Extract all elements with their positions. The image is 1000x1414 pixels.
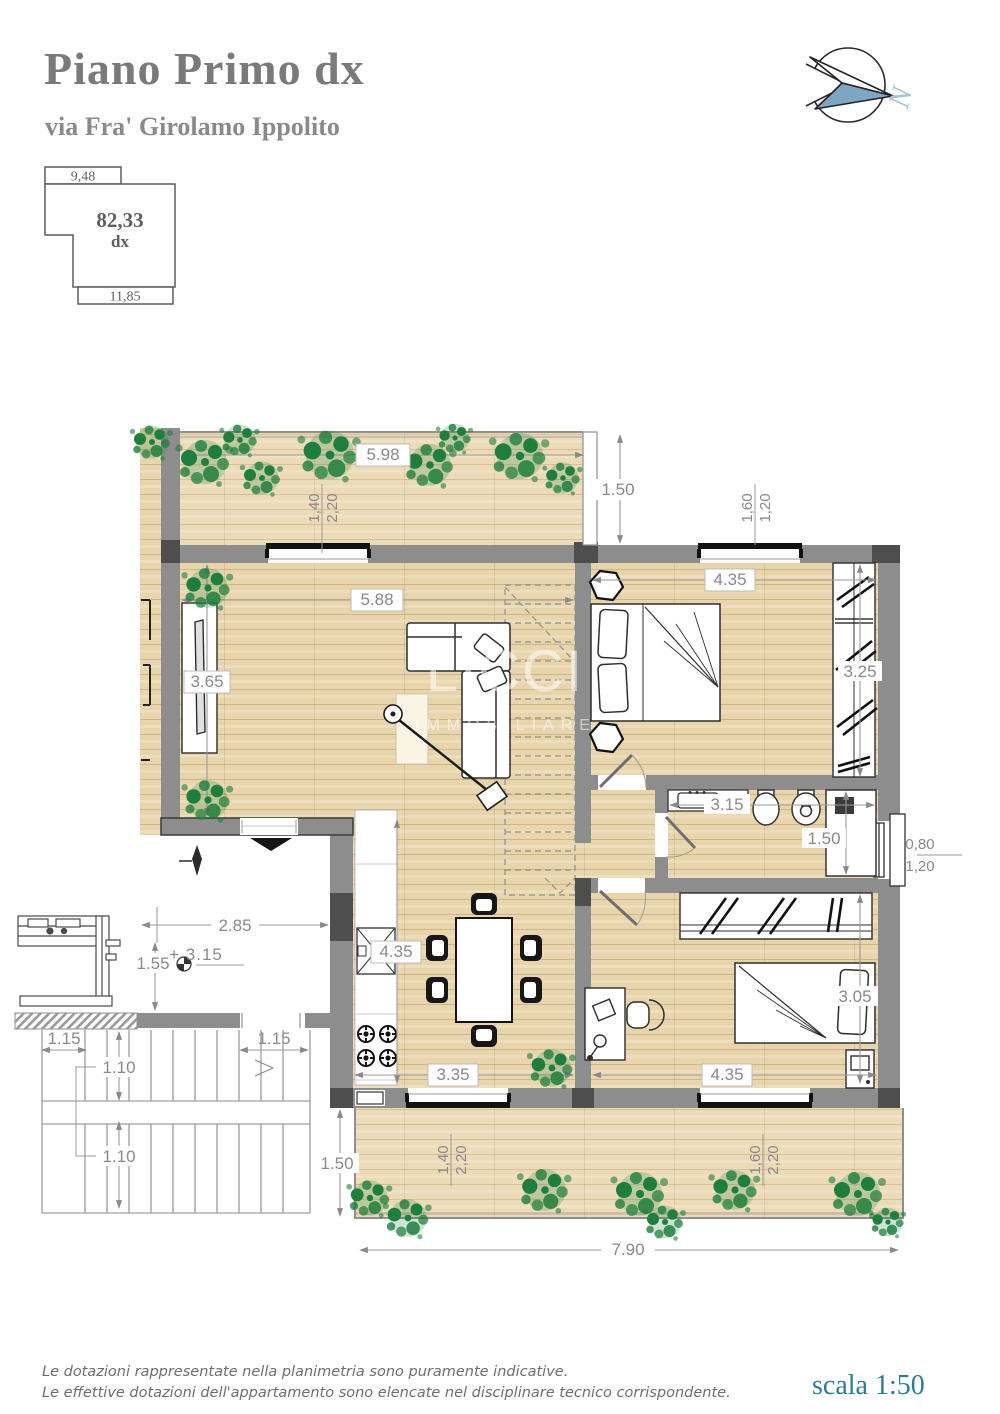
level-value: + 3.15 [169, 945, 223, 964]
keyplan-area: 82,33 [96, 208, 143, 232]
disclaimer-line2: Le effettive dotazioni dell'appartamento… [42, 1383, 731, 1404]
dim-stair-flight-lower: 1.10 [102, 1147, 135, 1166]
north-label: N [882, 82, 920, 113]
dim-stair-left: 1.15 [47, 1029, 80, 1048]
floorplan-page: Piano Primo dx via Fra' Girolamo Ippolit… [0, 0, 1000, 1414]
dim-landing-width: 2.85 [218, 916, 251, 935]
win-living-w: 1,40 [306, 493, 323, 522]
win-bedroom2-h: 2,20 [765, 1145, 782, 1174]
wardrobe-bedroom2 [680, 893, 872, 939]
dim-kitchen-depth: 4.35 [379, 942, 412, 961]
win-living-h: 2,20 [324, 493, 341, 522]
entry-door-detail [18, 916, 120, 1006]
dim-stair-flight-upper: 1.10 [102, 1058, 135, 1077]
dim-terrace-top-width: 5.98 [366, 445, 399, 464]
win-bath-w: 0,80 [905, 836, 934, 853]
win-kitchen-w: 1,40 [435, 1145, 452, 1174]
win-bedroom2-w: 1,60 [747, 1145, 764, 1174]
window-bath [874, 814, 905, 886]
floorplan-drawing: 9,48 82,33 dx 11,85 N [0, 0, 1000, 1414]
keyplan-unit: dx [111, 232, 129, 251]
dim-stair-right: 1.15 [257, 1029, 290, 1048]
desk [585, 988, 625, 1061]
north-compass-icon: N [804, 48, 920, 122]
small-window-kitchen [357, 1092, 383, 1104]
dim-bath-width: 3.15 [710, 795, 743, 814]
dim-shower-depth: 1.50 [807, 829, 840, 848]
dim-kitchen-width: 3.35 [436, 1065, 469, 1084]
keyplan-diagram: 9,48 82,33 dx 11,85 [45, 167, 175, 305]
scale-label: scala 1:50 [812, 1370, 925, 1402]
footer-disclaimer: Le dotazioni rappresentate nella planime… [42, 1362, 731, 1404]
dim-terrace-top-depth: 1.50 [601, 480, 634, 499]
dim-bedroom2-width: 4.35 [710, 1065, 743, 1084]
keyplan-width-bottom: 11,85 [110, 290, 141, 305]
dim-living-width: 5.88 [360, 590, 393, 609]
level-marker: + 3.15 [169, 945, 244, 971]
win-bath-h: 1,20 [905, 858, 934, 875]
dim-bedroom1-width: 4.35 [713, 570, 746, 589]
dim-terrace-bottom-width: 7.90 [611, 1240, 644, 1259]
dim-living-depth: 3.65 [190, 672, 223, 691]
section-marker [179, 845, 202, 876]
keyplan-width-top: 9,48 [71, 170, 96, 185]
win-bedroom1-h: 1,20 [757, 493, 774, 522]
disclaimer-line1: Le dotazioni rappresentate nella planime… [42, 1362, 731, 1383]
dim-bedroom2-depth: 3.05 [838, 987, 871, 1006]
entry-step-marker [250, 838, 292, 851]
dim-bedroom1-depth: 3.25 [843, 662, 876, 681]
win-bedroom1-w: 1,60 [739, 493, 756, 522]
bed-double [591, 604, 720, 721]
dim-terrace-bottom-depth: 1.50 [320, 1154, 353, 1173]
dim-landing-depth: 1.55 [136, 954, 169, 973]
win-kitchen-h: 2,20 [453, 1145, 470, 1174]
